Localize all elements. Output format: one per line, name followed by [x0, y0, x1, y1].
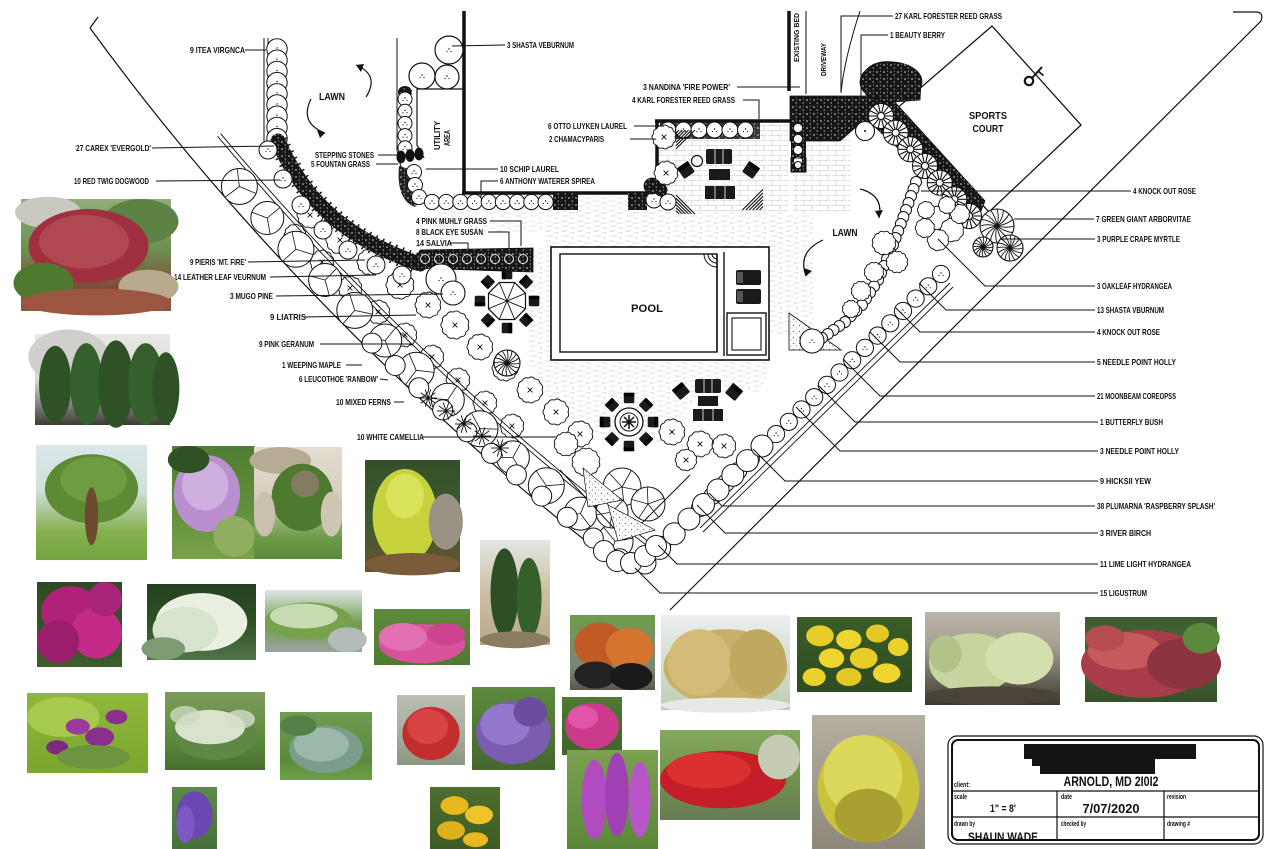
svg-text:EXISTING BED: EXISTING BED — [792, 13, 801, 62]
svg-text:3 SHASTA VEBURNUM: 3 SHASTA VEBURNUM — [507, 41, 574, 50]
svg-text:3 NEEDLE POINT HOLLY: 3 NEEDLE POINT HOLLY — [1100, 447, 1179, 456]
svg-text:SHAUN WADE: SHAUN WADE — [968, 830, 1038, 844]
svg-text:UTILITY: UTILITY — [433, 121, 442, 150]
svg-text:date: date — [1061, 794, 1072, 801]
svg-text:6 LEUCOTHOE 'RANBOW': 6 LEUCOTHOE 'RANBOW' — [299, 375, 378, 384]
svg-text:3 RIVER BIRCH: 3 RIVER BIRCH — [1100, 529, 1151, 538]
svg-text:3 OAKLEAF HYDRANGEA: 3 OAKLEAF HYDRANGEA — [1097, 282, 1172, 291]
svg-text:3 NANDINA 'FIRE POWER': 3 NANDINA 'FIRE POWER' — [643, 83, 730, 92]
svg-text:LAWN: LAWN — [833, 228, 858, 239]
svg-text:10 MIXED FERNS: 10 MIXED FERNS — [336, 398, 391, 407]
svg-text:3 MUGO PINE: 3 MUGO PINE — [230, 292, 273, 301]
svg-text:4 KNOCK OUT ROSE: 4 KNOCK OUT ROSE — [1097, 328, 1160, 337]
svg-text:LAWN: LAWN — [319, 92, 345, 103]
svg-text:4 KARL FORESTER REED GRASS: 4 KARL FORESTER REED GRASS — [632, 96, 735, 105]
svg-text:drawn by: drawn by — [954, 821, 975, 828]
svg-text:COURT: COURT — [973, 124, 1004, 135]
svg-text:8 BLACK EYE SUSAN: 8 BLACK EYE SUSAN — [416, 228, 483, 237]
svg-text:10 RED TWIG DOGWOOD: 10 RED TWIG DOGWOOD — [74, 177, 149, 186]
svg-text:6 ANTHONY WATERER SPIREA: 6 ANTHONY WATERER SPIREA — [500, 177, 595, 186]
svg-text:10 SCHIP LAUREL: 10 SCHIP LAUREL — [500, 165, 559, 174]
svg-text:revision: revision — [1167, 794, 1186, 801]
svg-text:2 CHAMACYPARIS: 2 CHAMACYPARIS — [549, 135, 604, 144]
svg-text:27 KARL FORESTER REED GRASS: 27 KARL FORESTER REED GRASS — [895, 12, 1002, 21]
svg-text:checked by: checked by — [1061, 821, 1086, 828]
svg-text:1 WEEPING MAPLE: 1 WEEPING MAPLE — [282, 361, 341, 370]
svg-text:5 FOUNTAN GRASS: 5 FOUNTAN GRASS — [311, 160, 370, 169]
svg-text:SPORTS: SPORTS — [969, 111, 1007, 122]
svg-text:9 PINK GERANUM: 9 PINK GERANUM — [259, 340, 314, 349]
svg-text:9 PIERIS 'MT. FIRE': 9 PIERIS 'MT. FIRE' — [190, 258, 246, 267]
svg-text:6 OTTO LUYKEN LAUREL: 6 OTTO LUYKEN LAUREL — [548, 122, 627, 131]
svg-text:7/07/2020: 7/07/2020 — [1083, 801, 1140, 816]
svg-text:10 WHITE CAMELLIA: 10 WHITE CAMELLIA — [357, 433, 424, 442]
svg-text:AREA: AREA — [443, 130, 452, 146]
svg-text:21 MOONBEAM COREOPSS: 21 MOONBEAM COREOPSS — [1097, 392, 1176, 401]
svg-text:1" = 8': 1" = 8' — [990, 803, 1016, 815]
svg-text:14 LEATHER LEAF VEURNUM: 14 LEATHER LEAF VEURNUM — [174, 273, 266, 282]
svg-text:13 SHASTA VBURNUM: 13 SHASTA VBURNUM — [1097, 306, 1164, 315]
svg-text:9 LIATRIS: 9 LIATRIS — [270, 313, 307, 322]
svg-text:5 NEEDLE POINT HOLLY: 5 NEEDLE POINT HOLLY — [1097, 358, 1176, 367]
svg-text:scale: scale — [954, 794, 967, 801]
svg-text:4 KNOCK OUT ROSE: 4 KNOCK OUT ROSE — [1133, 187, 1196, 196]
svg-text:POOL: POOL — [631, 303, 663, 315]
svg-text:1 BEAUTY BERRY: 1 BEAUTY BERRY — [890, 31, 945, 40]
svg-text:DRIVEWAY: DRIVEWAY — [819, 43, 828, 76]
svg-text:3 PURPLE CRAPE MYRTLE: 3 PURPLE CRAPE MYRTLE — [1097, 235, 1180, 244]
svg-text:STEPPING STONES: STEPPING STONES — [315, 151, 374, 160]
svg-text:9 ITEA VIRGNCA: 9 ITEA VIRGNCA — [190, 46, 245, 55]
svg-text:15 LIGUSTRUM: 15 LIGUSTRUM — [1100, 589, 1147, 598]
svg-text:27 CAREX 'EVERGOLD': 27 CAREX 'EVERGOLD' — [76, 144, 151, 153]
svg-text:14 SALVIA: 14 SALVIA — [416, 239, 452, 248]
svg-text:9 HICKSII YEW: 9 HICKSII YEW — [1100, 477, 1151, 486]
svg-text:7 GREEN GIANT ARBORVITAE: 7 GREEN GIANT ARBORVITAE — [1096, 215, 1191, 224]
svg-text:ARNOLD, MD 2I0I2: ARNOLD, MD 2I0I2 — [1064, 774, 1159, 789]
svg-text:client:: client: — [954, 782, 970, 789]
svg-text:38 PLUMARNA 'RASPBERRY SPLASH': 38 PLUMARNA 'RASPBERRY SPLASH' — [1097, 502, 1215, 511]
svg-text:1 BUTTERFLY BUSH: 1 BUTTERFLY BUSH — [1100, 418, 1163, 427]
svg-text:4 PINK MUHLY GRASS: 4 PINK MUHLY GRASS — [416, 217, 487, 226]
svg-text:drawing #: drawing # — [1167, 821, 1190, 828]
svg-text:11 LIME LIGHT HYDRANGEA: 11 LIME LIGHT HYDRANGEA — [1100, 560, 1191, 569]
